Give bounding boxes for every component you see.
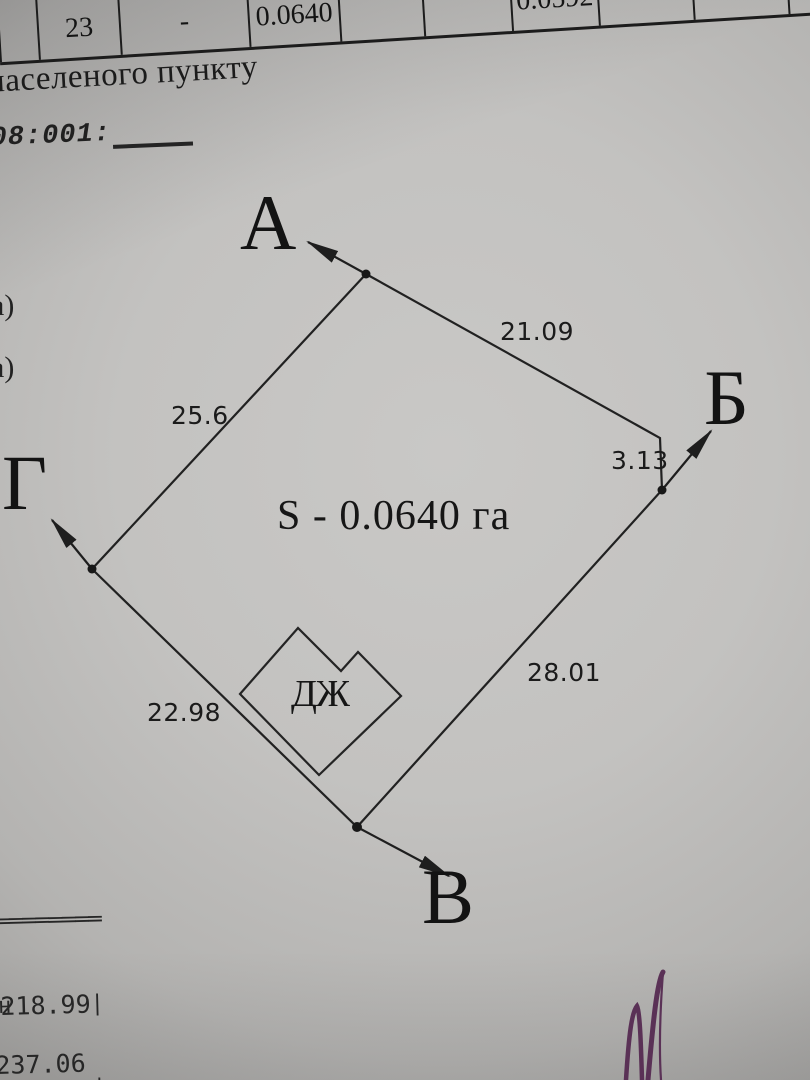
vertex-label-v: В bbox=[422, 858, 474, 936]
survey-point-a bbox=[362, 270, 371, 279]
side-length-ga: 25.6 bbox=[171, 401, 229, 430]
side-length-ab: 21.09 bbox=[500, 317, 574, 346]
side-length-bv: 28.01 bbox=[527, 658, 601, 687]
parcel-boundary bbox=[92, 274, 662, 827]
arrow-to-vertex-g bbox=[52, 520, 92, 569]
footer-ascii-table: ════════ н | -------| у | ════════ bbox=[0, 850, 112, 1080]
side-length-bend-b: 3.13 bbox=[611, 446, 669, 475]
ink-signature-stroke-1 bbox=[626, 1006, 642, 1080]
footer-ascii-row: ════════ bbox=[0, 906, 102, 937]
survey-point-b bbox=[658, 486, 667, 495]
survey-point-g bbox=[88, 565, 97, 574]
vertex-label-b: Б bbox=[704, 359, 749, 437]
building-label: ДЖ bbox=[291, 672, 349, 716]
parcel-plan-svg bbox=[0, 0, 810, 1080]
vertex-label-g: Г bbox=[2, 444, 47, 522]
survey-point-v bbox=[352, 822, 362, 832]
document-photo: 23 - 0.0640 0.0592 населеного пункту 08:… bbox=[0, 0, 810, 1080]
footer-coordinate-1: 218.99 bbox=[0, 990, 91, 1021]
side-length-vg: 22.98 bbox=[147, 698, 221, 727]
arrow-to-vertex-a bbox=[308, 242, 366, 274]
vertex-label-a: А bbox=[240, 184, 296, 262]
footer-coordinate-2: 237.06 bbox=[0, 1049, 86, 1080]
parcel-area-label: S - 0.0640 га bbox=[277, 492, 510, 540]
